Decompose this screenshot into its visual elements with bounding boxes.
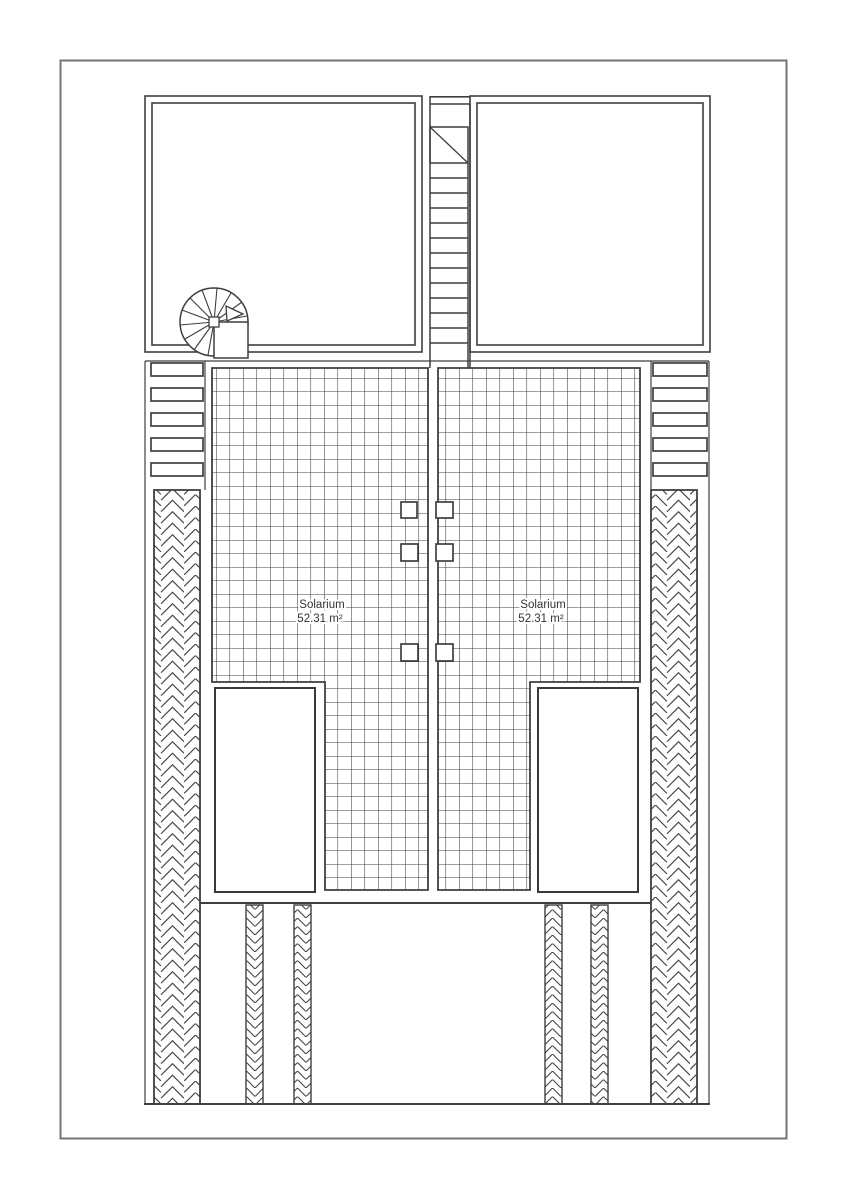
- left-gravel-strip: [154, 490, 200, 1104]
- room-name: Solarium: [299, 599, 344, 611]
- left-roof-opening: [215, 688, 315, 892]
- floor-plan-page: Solarium 52.31 m² Solarium 52.31 m²: [0, 0, 848, 1200]
- room-area: 52.31 m²: [297, 613, 343, 625]
- support-columns: [246, 905, 608, 1104]
- stair-treads: [430, 178, 468, 343]
- pergola-louvers-right: [653, 363, 707, 476]
- spiral-staircase: [180, 288, 248, 358]
- room-name: Solarium: [520, 599, 565, 611]
- right-roof-opening: [538, 688, 638, 892]
- room-area: 52.31 m²: [518, 613, 564, 625]
- right-room-outline: [430, 96, 710, 352]
- floor-plan-drawing: Solarium 52.31 m² Solarium 52.31 m²: [0, 0, 848, 1200]
- staircase: [430, 96, 470, 368]
- right-gravel-strip: [651, 490, 697, 1104]
- pergola-louvers-left: [151, 363, 203, 476]
